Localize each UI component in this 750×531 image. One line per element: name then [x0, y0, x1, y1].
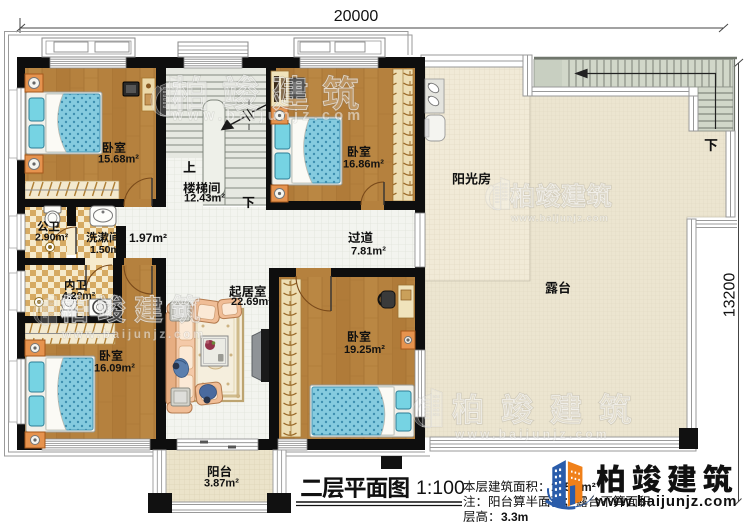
svg-text:www.baijunjz.com: www.baijunjz.com: [454, 427, 610, 441]
svg-text:12.43m²: 12.43m²: [184, 193, 225, 205]
svg-text:2.90m²: 2.90m²: [35, 232, 69, 244]
svg-text:1:100: 1:100: [416, 477, 465, 499]
svg-text:3.3m: 3.3m: [501, 510, 528, 524]
svg-text:13200: 13200: [722, 273, 739, 318]
svg-text:www.baijunjz.com: www.baijunjz.com: [510, 213, 609, 224]
svg-text:www.baijunjz.com: www.baijunjz.com: [594, 493, 737, 510]
svg-text:22.69m²: 22.69m²: [231, 296, 272, 308]
svg-text:1.97m²: 1.97m²: [129, 231, 167, 245]
svg-text:www.baijunjz.com: www.baijunjz.com: [171, 108, 364, 124]
svg-text:19.25m²: 19.25m²: [344, 344, 385, 356]
svg-text:3.87m²: 3.87m²: [204, 478, 239, 490]
svg-text:16.86m²: 16.86m²: [343, 159, 384, 171]
svg-text:15.68m²: 15.68m²: [98, 154, 139, 166]
svg-text:16.09m²: 16.09m²: [94, 363, 135, 375]
svg-text:www.baijunjz.com: www.baijunjz.com: [61, 329, 206, 341]
svg-text:7.81m²: 7.81m²: [351, 246, 386, 258]
svg-text:20000: 20000: [334, 8, 379, 25]
svg-text:1.50m²: 1.50m²: [90, 244, 124, 256]
